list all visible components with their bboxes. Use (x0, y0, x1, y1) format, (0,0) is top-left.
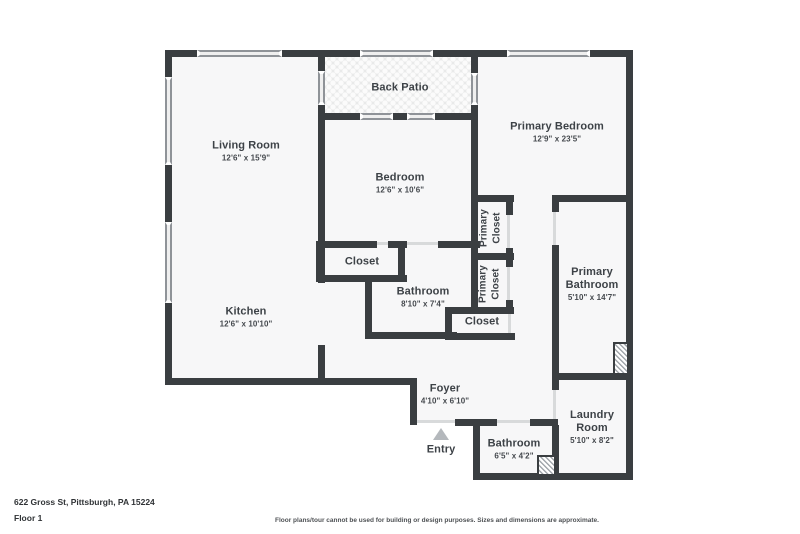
wall (318, 50, 325, 71)
room-name: Living Room (212, 140, 280, 153)
room-label-primary-closet-2: Primary Closet (478, 259, 503, 309)
wall (552, 195, 559, 212)
door-opening (377, 242, 388, 245)
room-dims: 5'10" x 14'7" (560, 293, 624, 302)
room-dims: 12'6" x 10'6" (376, 185, 425, 194)
entry-arrow (433, 428, 449, 440)
room-name: Back Patio (371, 82, 428, 95)
room-label-primary-closet-1: Primary Closet (479, 203, 504, 253)
door-opening (508, 313, 511, 333)
entry-label: Entry (427, 444, 456, 457)
room-name: Foyer (421, 383, 469, 396)
room-name: Bathroom (488, 438, 541, 451)
room-label-primary-bathroom: Primary Bathroom 5'10" x 14'7" (560, 266, 624, 302)
wall (506, 253, 513, 267)
wall (552, 195, 633, 202)
wall (393, 113, 407, 120)
room-label-kitchen: Kitchen 12'6" x 10'10" (220, 306, 273, 329)
wall (318, 345, 325, 385)
room-dims: 8'10" x 7'4" (397, 299, 450, 308)
disclaimer: Floor plans/tour cannot be used for buil… (275, 517, 599, 524)
room-label-laundry-room: Laundry Room 5'10" x 8'2" (567, 409, 617, 445)
wall (365, 332, 457, 339)
door-opening (417, 420, 455, 423)
room-label-living-room: Living Room 12'6" x 15'9" (212, 140, 280, 163)
room-label-bathroom-2: Bathroom 6'5" x 4'2" (488, 438, 541, 461)
door-opening (497, 420, 530, 423)
room-dims: 6'5" x 4'2" (488, 451, 541, 460)
wall (445, 333, 515, 340)
floor-plan-page: Living Room 12'6" x 15'9" Back Patio Pri… (0, 0, 800, 534)
room-dims: 12'6" x 15'9" (212, 153, 280, 162)
floor-plan: Living Room 12'6" x 15'9" Back Patio Pri… (0, 0, 800, 534)
wall (471, 50, 478, 73)
window (165, 77, 172, 165)
room-dims: 5'10" x 8'2" (567, 436, 617, 445)
room-dims: 12'9" x 23'5" (510, 134, 604, 143)
room-name: Laundry Room (567, 409, 617, 435)
wall (398, 241, 405, 282)
window (318, 71, 325, 105)
room-dims: 4'10" x 6'10" (421, 396, 469, 405)
wall (316, 275, 407, 282)
wall (410, 378, 417, 425)
room-label-bedroom: Bedroom 12'6" x 10'6" (376, 172, 425, 195)
room-name: Primary Closet (478, 259, 503, 309)
window (197, 50, 282, 57)
room-dims: 12'6" x 10'10" (220, 319, 273, 328)
window (165, 222, 172, 303)
room-label-bathroom: Bathroom 8'10" x 7'4" (397, 286, 450, 309)
room-name: Bedroom (376, 172, 425, 185)
room-name: Bathroom (397, 286, 450, 299)
door-opening (507, 215, 510, 248)
fixture-hatched-box (613, 342, 629, 375)
floor-label: Floor 1 (14, 513, 42, 523)
room-name: Kitchen (220, 306, 273, 319)
room-name: Primary Bathroom (560, 266, 624, 292)
room-label-hall-closet: Closet (465, 316, 499, 329)
wall (365, 278, 372, 339)
wall (552, 245, 559, 390)
room-name: Closet (465, 316, 499, 329)
wall (626, 50, 633, 480)
wall (316, 241, 377, 248)
window (507, 50, 590, 57)
window (407, 113, 435, 120)
door-opening (507, 267, 510, 300)
room-label-foyer: Foyer 4'10" x 6'10" (421, 383, 469, 406)
wall (506, 195, 513, 215)
room-label-back-patio: Back Patio (371, 82, 428, 95)
door-opening (407, 242, 438, 245)
room-name: Primary Bedroom (510, 121, 604, 134)
window (471, 73, 478, 105)
room-name: Closet (345, 256, 379, 269)
room-name: Entry (427, 444, 456, 457)
room-label-closet: Closet (345, 256, 379, 269)
wall (165, 378, 417, 385)
window (360, 113, 393, 120)
wall (473, 419, 480, 480)
window (360, 50, 433, 57)
address: 622 Gross St, Pittsburgh, PA 15224 (14, 497, 155, 507)
room-name: Primary Closet (479, 203, 504, 253)
door-opening (553, 212, 556, 245)
room-label-primary-bedroom: Primary Bedroom 12'9" x 23'5" (510, 121, 604, 144)
